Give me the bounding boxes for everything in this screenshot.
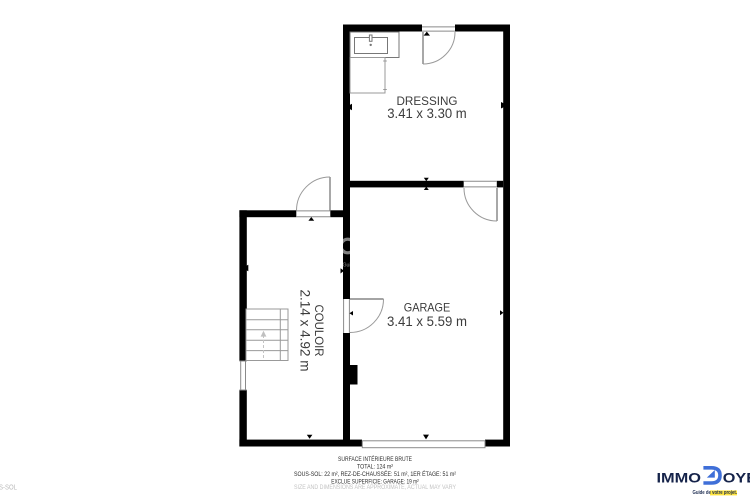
svg-text:SURFACE INTÉRIEURE BRUTE: SURFACE INTÉRIEURE BRUTE: [338, 454, 412, 463]
svg-text:SOUS-SOL: 22 m², REZ-DE-CHAUSS: SOUS-SOL: 22 m², REZ-DE-CHAUSSÉE: 51 m²,…: [294, 469, 457, 478]
svg-text:OYEN: OYEN: [723, 471, 750, 486]
svg-text:Guide de votre projet.: Guide de votre projet.: [343, 263, 393, 269]
svg-text:2.14 x 4.92 m: 2.14 x 4.92 m: [298, 290, 313, 372]
svg-text:COULOIR: COULOIR: [312, 305, 326, 357]
svg-text:TOTAL: 124 m²: TOTAL: 124 m²: [357, 463, 394, 470]
svg-text:S-SOL: S-SOL: [0, 483, 17, 492]
svg-text:Guide de votre projet.: Guide de votre projet.: [693, 490, 738, 496]
svg-text:3.41 x 3.30 m: 3.41 x 3.30 m: [387, 106, 467, 121]
svg-text:3.41 x 5.59 m: 3.41 x 5.59 m: [387, 314, 467, 329]
svg-text:GARAGE: GARAGE: [404, 300, 451, 314]
svg-text:IMMO: IMMO: [657, 471, 702, 486]
svg-text:SIZE AND DIMENSIONS ARE APPROX: SIZE AND DIMENSIONS ARE APPROXIMATE, ACT…: [294, 484, 456, 491]
